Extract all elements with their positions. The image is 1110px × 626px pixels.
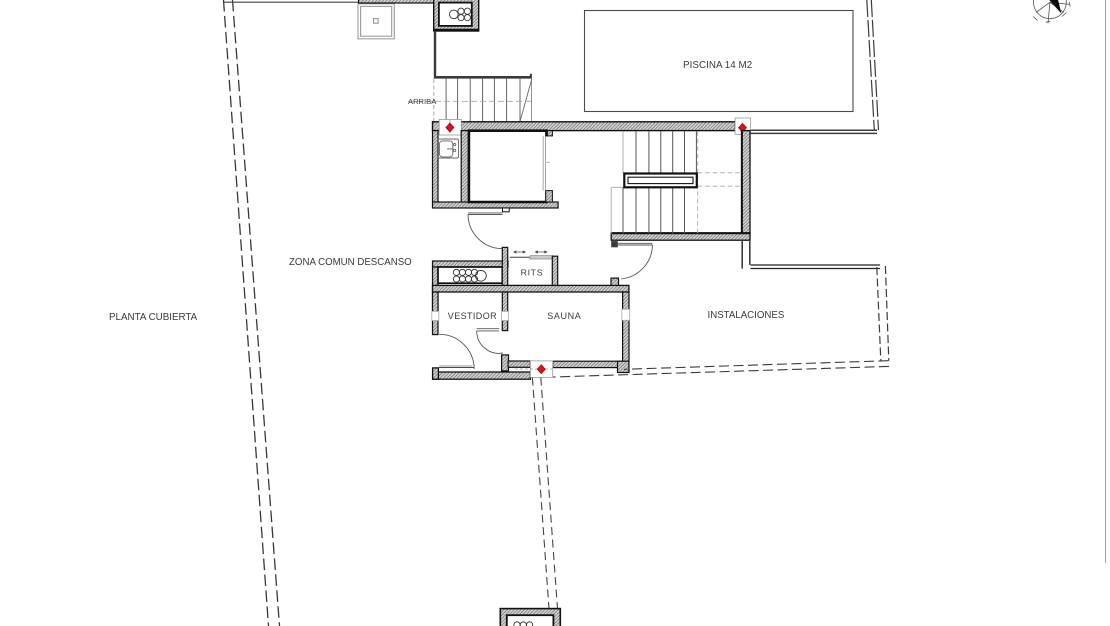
svg-text:VESTIDOR: VESTIDOR <box>448 311 497 321</box>
svg-text:PISCINA 14 M2: PISCINA 14 M2 <box>683 60 752 71</box>
svg-text:SAUNA: SAUNA <box>547 311 581 321</box>
svg-text:INSTALACIONES: INSTALACIONES <box>708 310 785 321</box>
svg-text:ARRIBA: ARRIBA <box>408 97 437 106</box>
svg-text:RITS: RITS <box>521 268 544 278</box>
svg-text:ZONA COMUN DESCANSO: ZONA COMUN DESCANSO <box>289 257 412 268</box>
svg-text:PLANTA CUBIERTA: PLANTA CUBIERTA <box>109 312 198 323</box>
